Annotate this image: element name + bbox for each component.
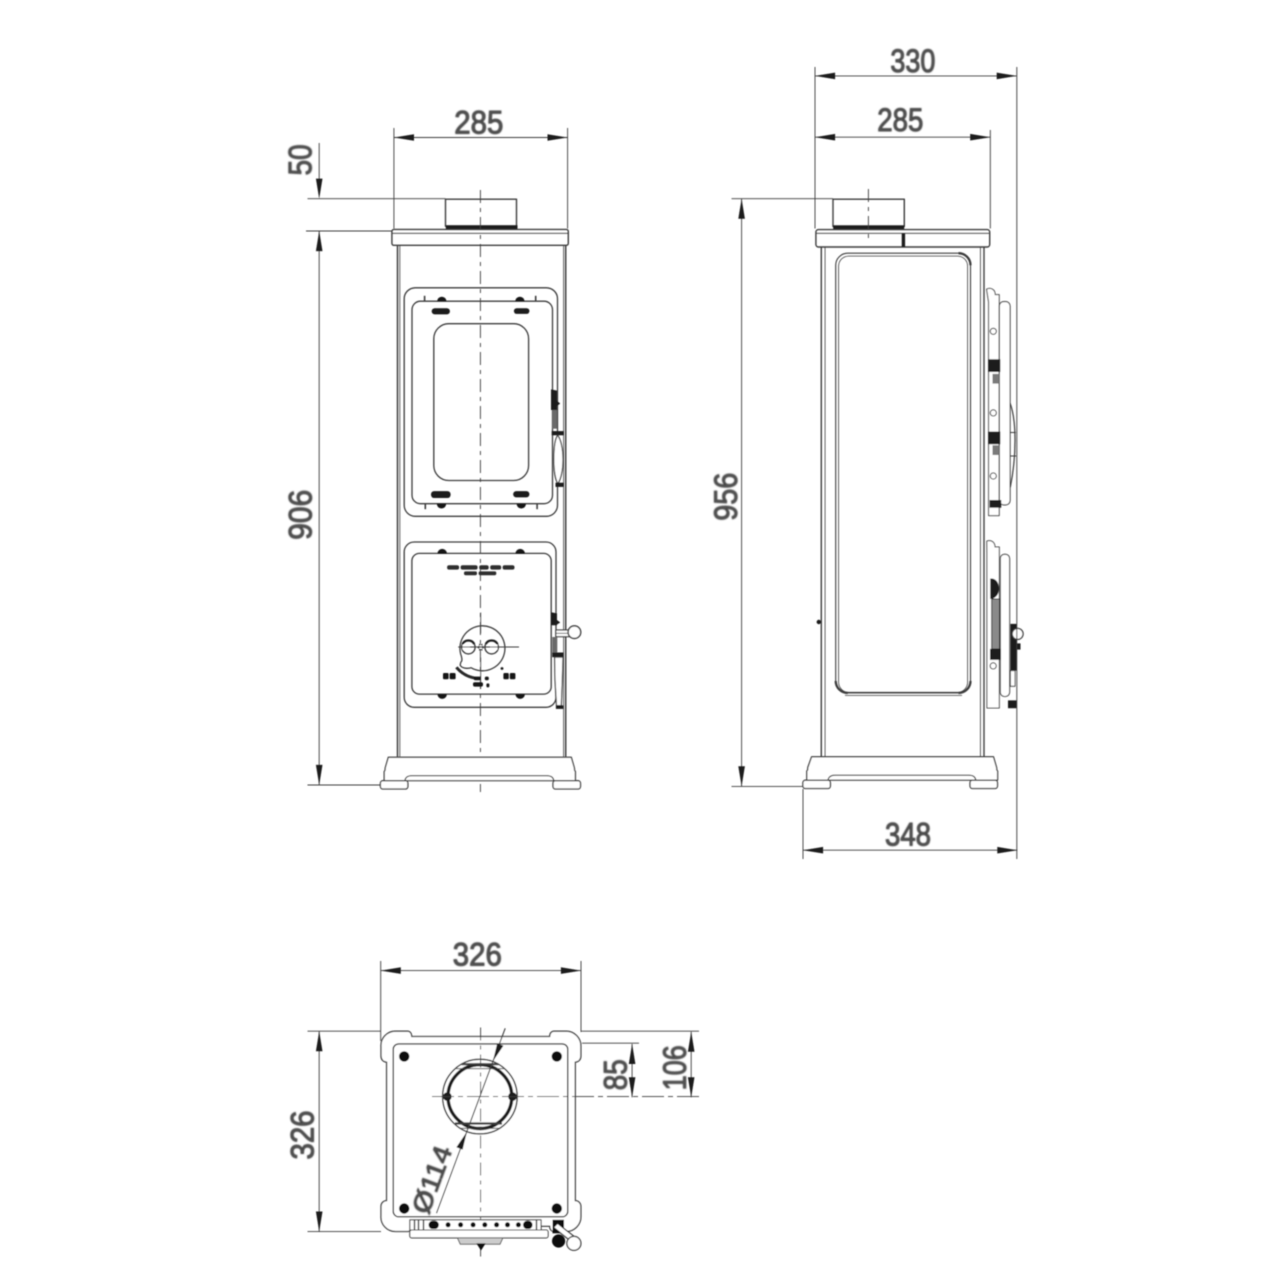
svg-text:285: 285 [877, 102, 923, 138]
svg-text:285: 285 [454, 104, 503, 140]
svg-text:50: 50 [282, 144, 318, 175]
svg-text:326: 326 [453, 936, 502, 972]
svg-text:906: 906 [283, 490, 319, 540]
svg-text:330: 330 [890, 43, 935, 79]
svg-text:956: 956 [708, 473, 744, 521]
svg-text:85: 85 [598, 1059, 634, 1090]
svg-text:326: 326 [285, 1111, 321, 1160]
svg-text:106: 106 [657, 1045, 693, 1090]
svg-text:348: 348 [885, 817, 931, 853]
